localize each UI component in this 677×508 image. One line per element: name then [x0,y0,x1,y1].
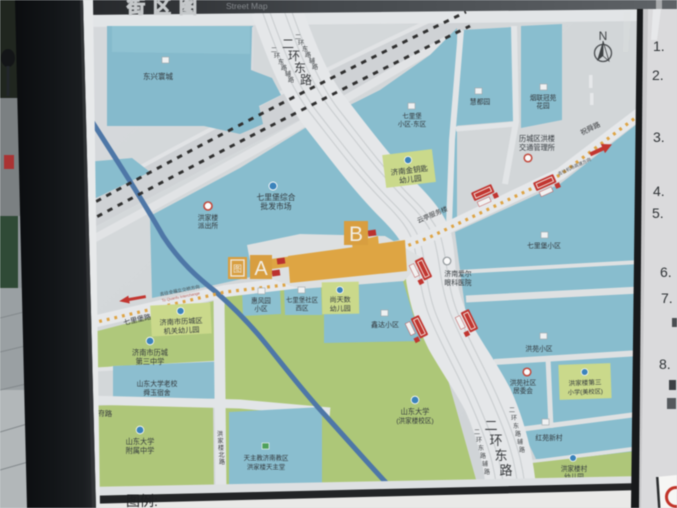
svg-text:5.: 5. [652,205,664,221]
svg-text:1.: 1. [653,38,665,54]
svg-text:3.: 3. [653,129,665,145]
svg-text:Street Map: Street Map [226,1,268,11]
svg-text:7.: 7. [661,290,673,306]
svg-text:4.: 4. [653,183,665,199]
svg-text:6.: 6. [660,264,672,280]
svg-text:8.: 8. [659,356,671,372]
svg-text:2.: 2. [652,67,664,83]
svg-text:街区图: 街区图 [126,0,205,17]
svg-text:图例:: 图例: [126,493,158,508]
